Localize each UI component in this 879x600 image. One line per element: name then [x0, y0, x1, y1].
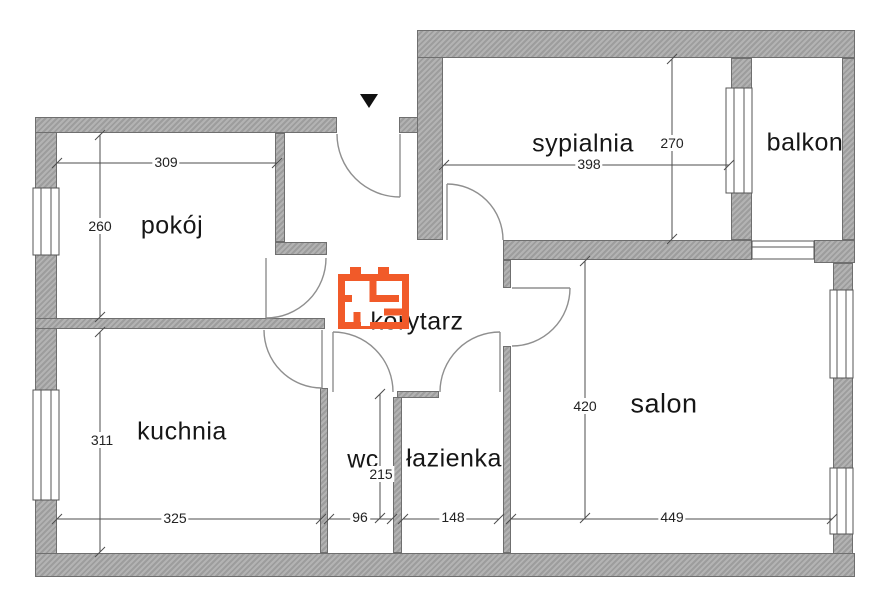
- dim-sypialnia-height: 270: [658, 135, 685, 151]
- door-entrance: [337, 134, 400, 197]
- door-pokoj: [266, 258, 326, 318]
- dim-sypialnia-width: 398: [575, 156, 602, 172]
- dim-kuchnia-width: 325: [161, 510, 188, 526]
- window-kuchnia-left: [33, 390, 59, 500]
- dim-kuchnia-height: 311: [89, 432, 115, 448]
- dim-salon-height: 420: [571, 398, 598, 414]
- room-label-sypialnia: sypialnia: [532, 130, 634, 159]
- brand-logo-icon: [337, 266, 410, 330]
- window-salon-right-upper: [830, 290, 853, 378]
- room-label-salon: salon: [630, 389, 697, 420]
- room-label-pokoj: pokój: [141, 212, 203, 241]
- dim-pokoj-width: 309: [152, 154, 179, 170]
- dim-lazienka-width: 148: [439, 509, 466, 525]
- dim-salon-width: 449: [658, 509, 685, 525]
- room-label-balkon: balkon: [767, 129, 844, 158]
- entrance-marker-icon: [360, 94, 378, 108]
- door-sypialnia: [447, 184, 503, 240]
- door-lazienka: [440, 332, 500, 392]
- window-salon-right-lower: [830, 468, 853, 534]
- dim-pokoj-height: 260: [86, 218, 113, 234]
- room-label-lazienka: łazienka: [406, 445, 502, 474]
- dimension-lines: [52, 54, 837, 557]
- window-sypialnia-balkon: [726, 88, 752, 193]
- room-label-kuchnia: kuchnia: [137, 418, 227, 447]
- door-salon: [512, 288, 570, 346]
- dim-wc-height: 215: [367, 466, 394, 482]
- logo-notch: [361, 317, 370, 326]
- floor-plan: pokój sypialnia balkon kuchnia korytarz …: [0, 0, 879, 600]
- window-pokoj-left: [33, 188, 59, 255]
- door-wc: [333, 332, 393, 392]
- window-balkon-door: [752, 241, 814, 259]
- door-kuchnia: [264, 330, 322, 388]
- dim-wc-width: 96: [350, 509, 370, 525]
